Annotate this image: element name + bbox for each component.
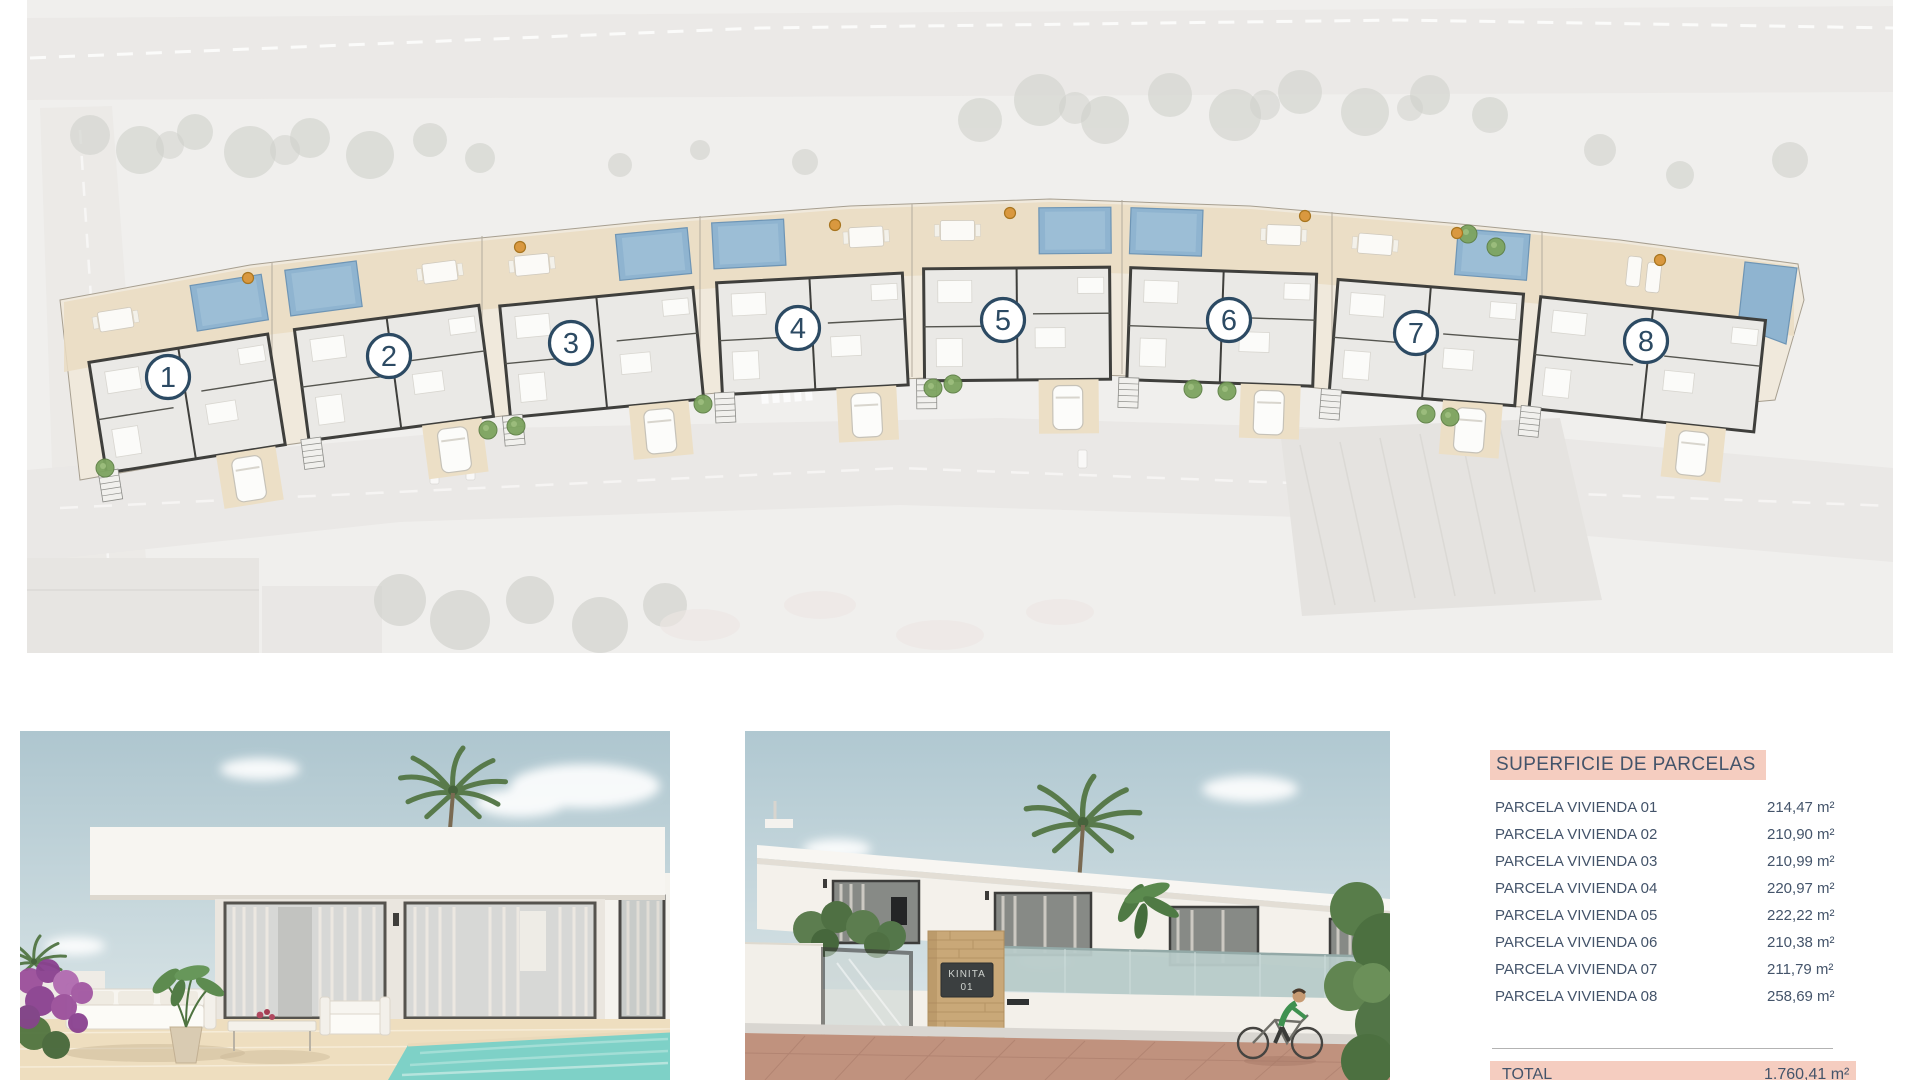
svg-text:3: 3 bbox=[563, 328, 579, 360]
plot-number-badge-5: 5 bbox=[982, 299, 1025, 342]
parcel-label: PARCELA VIVIENDA 08 bbox=[1495, 983, 1767, 1010]
tv-screen bbox=[891, 897, 907, 925]
brochure-page: 12345678 bbox=[0, 0, 1920, 1080]
stairs bbox=[1518, 405, 1541, 437]
table-row: PARCELA VIVIENDA 01214,47 m² bbox=[1495, 794, 1855, 821]
svg-text:2: 2 bbox=[381, 341, 397, 373]
parcel-area-value: 210,99 m² bbox=[1767, 848, 1855, 875]
marker-icon bbox=[243, 273, 254, 284]
table-row: PARCELA VIVIENDA 07211,79 m² bbox=[1495, 956, 1855, 983]
table-row: PARCELA VIVIENDA 05222,22 m² bbox=[1495, 902, 1855, 929]
total-value: 1.760,41 m² bbox=[1764, 1066, 1856, 1080]
plot-number-badge-7: 7 bbox=[1395, 312, 1438, 355]
plot-number-badge-1: 1 bbox=[147, 356, 190, 399]
render-villa-street-entrance: KINITA 01 bbox=[745, 731, 1390, 1080]
table-row: PARCELA VIVIENDA 03210,99 m² bbox=[1495, 848, 1855, 875]
mailbox-slot bbox=[1007, 999, 1029, 1005]
marker-icon bbox=[1300, 211, 1311, 222]
table-row: PARCELA VIVIENDA 06210,38 m² bbox=[1495, 929, 1855, 956]
render-villa-terrace-pool bbox=[20, 731, 670, 1080]
wall-lamp-icon bbox=[393, 913, 399, 926]
parcel-area-value: 258,69 m² bbox=[1767, 983, 1855, 1010]
svg-text:1: 1 bbox=[160, 362, 176, 394]
parcel-label: PARCELA VIVIENDA 07 bbox=[1495, 956, 1767, 983]
parcel-area-value: 211,79 m² bbox=[1767, 956, 1855, 983]
table-separator bbox=[1492, 1048, 1833, 1049]
marker-icon bbox=[1655, 255, 1666, 266]
marker-icon bbox=[515, 242, 526, 253]
plot-number-badge-6: 6 bbox=[1208, 299, 1251, 342]
table-total-row: TOTAL 1.760,41 m² bbox=[1490, 1061, 1856, 1080]
parcel-area-value: 210,90 m² bbox=[1767, 821, 1855, 848]
stairs bbox=[1118, 377, 1139, 408]
parcel-area-table: PARCELA VIVIENDA 01214,47 m²PARCELA VIVI… bbox=[1495, 794, 1855, 1010]
svg-text:4: 4 bbox=[790, 313, 806, 345]
plot-number-badge-2: 2 bbox=[368, 335, 411, 378]
plot-number-badge-4: 4 bbox=[777, 307, 820, 350]
table-row: PARCELA VIVIENDA 08258,69 m² bbox=[1495, 983, 1855, 1010]
parcel-label: PARCELA VIVIENDA 01 bbox=[1495, 794, 1767, 821]
plot-number-badge-8: 8 bbox=[1625, 320, 1668, 363]
parcel-label: PARCELA VIVIENDA 06 bbox=[1495, 929, 1767, 956]
entrance-sign-line2: 01 bbox=[960, 982, 973, 993]
svg-text:6: 6 bbox=[1221, 305, 1237, 337]
svg-text:7: 7 bbox=[1408, 318, 1424, 350]
stairs bbox=[301, 437, 325, 469]
entrance-sign-line1: KINITA bbox=[948, 969, 985, 980]
plot-number-badge-3: 3 bbox=[550, 322, 593, 365]
parcel-area-value: 220,97 m² bbox=[1767, 875, 1855, 902]
stairs bbox=[714, 392, 736, 423]
parcel-label: PARCELA VIVIENDA 04 bbox=[1495, 875, 1767, 902]
marker-icon bbox=[1452, 228, 1463, 239]
marker-icon bbox=[1005, 208, 1016, 219]
table-title: SUPERFICIE DE PARCELAS bbox=[1490, 750, 1766, 780]
table-row: PARCELA VIVIENDA 02210,90 m² bbox=[1495, 821, 1855, 848]
parcel-area-value: 222,22 m² bbox=[1767, 902, 1855, 929]
stairs bbox=[1319, 389, 1341, 420]
total-label: TOTAL bbox=[1490, 1066, 1764, 1080]
parcel-area-value: 214,47 m² bbox=[1767, 794, 1855, 821]
parcel-label: PARCELA VIVIENDA 02 bbox=[1495, 821, 1767, 848]
armchair bbox=[320, 997, 390, 1035]
site-plan: 12345678 bbox=[0, 0, 1920, 660]
table-row: PARCELA VIVIENDA 04220,97 m² bbox=[1495, 875, 1855, 902]
parcel-label: PARCELA VIVIENDA 03 bbox=[1495, 848, 1767, 875]
parcel-label: PARCELA VIVIENDA 05 bbox=[1495, 902, 1767, 929]
svg-text:5: 5 bbox=[995, 305, 1011, 337]
parcel-area-value: 210,38 m² bbox=[1767, 929, 1855, 956]
svg-text:8: 8 bbox=[1638, 326, 1654, 358]
marker-icon bbox=[830, 220, 841, 231]
